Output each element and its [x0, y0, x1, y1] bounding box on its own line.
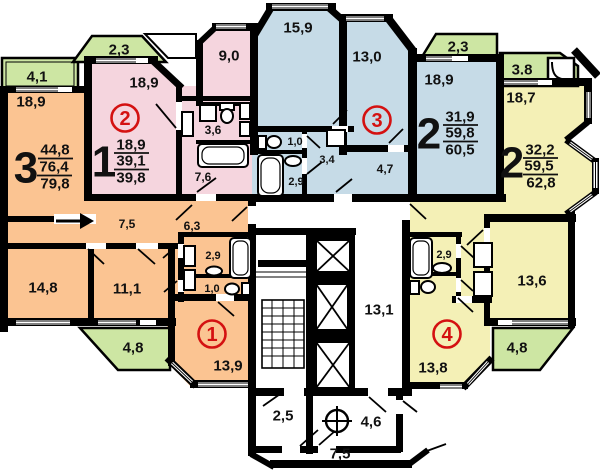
- washing-machine-icon: [200, 105, 216, 121]
- flat-number: 4: [441, 324, 453, 346]
- room-area-label: 3,4: [319, 154, 335, 166]
- balcony-area-label: 4,8: [507, 340, 528, 357]
- balcony-area-label: 2,3: [109, 42, 130, 59]
- bathtub-icon: [410, 238, 432, 278]
- elevator-icon: [316, 284, 348, 330]
- window: [272, 4, 328, 9]
- window: [426, 56, 468, 61]
- apartment-rooms-count: 3: [14, 144, 38, 193]
- room-area-label: 13,8: [418, 360, 447, 377]
- room-area-label: 13,6: [517, 273, 546, 290]
- bathtub-icon: [230, 238, 251, 278]
- window: [498, 320, 568, 325]
- apartment-full-area: 79,8: [40, 176, 69, 193]
- room-area-label: 4,7: [377, 162, 394, 176]
- garbage-chute-icon: [322, 406, 352, 436]
- apartment-total-area: 39,1: [116, 153, 145, 170]
- cabinet-icon: [327, 130, 345, 146]
- toilet-icon: [410, 281, 435, 294]
- room-area-label: 9,0: [219, 48, 240, 65]
- balcony-area-label: 4,8: [123, 340, 144, 357]
- apartment-living-area: 32,2: [525, 142, 554, 159]
- sink-icon: [206, 267, 222, 276]
- window: [98, 320, 156, 325]
- room-area-label: 2,9: [436, 249, 451, 261]
- bathtub-icon: [198, 144, 248, 167]
- room-area-label: 13,0: [352, 49, 381, 66]
- room-area-label: 1,0: [204, 283, 219, 295]
- flat-number: 3: [371, 110, 382, 132]
- apartment-rooms-count: 1: [92, 138, 116, 187]
- room-area-label: 4,6: [361, 414, 382, 431]
- room-area-label: 18,9: [424, 72, 453, 89]
- apartment-full-area: 39,8: [116, 170, 145, 187]
- toilet-icon: [225, 283, 250, 295]
- room-area-label: 18,9: [129, 75, 158, 92]
- flat-number: 2: [119, 108, 130, 130]
- cabinet-icon: [182, 112, 193, 136]
- sink-icon: [285, 156, 301, 166]
- balcony-48-right: [493, 328, 573, 370]
- elevator-icon: [316, 240, 350, 272]
- room-area-label: 14,8: [28, 280, 57, 297]
- window: [216, 24, 246, 29]
- room-area-label: 7,6: [195, 170, 212, 184]
- room-area-label: 3,6: [205, 123, 222, 137]
- floor-plan: 4,1 2,3 2,3 3.8 4,8 4,8 18,9 3 44,8 76,4…: [0, 0, 600, 473]
- apartment-full-area: 60,5: [445, 142, 474, 159]
- room-area-label: 1,0: [287, 136, 302, 148]
- window: [16, 87, 72, 92]
- room-area-label: 18,9: [16, 94, 45, 111]
- room-area-label: 18,7: [506, 90, 535, 107]
- flat-number: 1: [206, 324, 217, 346]
- sink-icon: [433, 263, 451, 273]
- toilet-icon: [258, 136, 281, 149]
- balcony-area-label: 3.8: [512, 62, 533, 79]
- room-area-label: 11,1: [113, 281, 141, 298]
- window: [346, 16, 384, 21]
- building-core: [256, 232, 355, 436]
- balcony-area-label: 2,3: [448, 39, 469, 56]
- window: [16, 320, 70, 325]
- room-area-label: 13,1: [364, 302, 393, 319]
- apartment-living-area: 31,9: [445, 109, 474, 126]
- apartment-full-area: 62,8: [526, 175, 555, 192]
- room-area-label: 2,9: [205, 250, 220, 262]
- floor-plan-svg: 4,1 2,3 2,3 3.8 4,8 4,8 18,9 3 44,8 76,4…: [0, 0, 600, 473]
- cabinet-icon: [240, 103, 250, 136]
- room-area-label: 7,5: [119, 217, 136, 231]
- room-area-label: 6,3: [184, 219, 201, 233]
- apartment-living-area: 44,8: [40, 142, 69, 159]
- apartment-total-area: 59,5: [524, 158, 553, 175]
- apartment-rooms-count: 2: [500, 139, 524, 188]
- window: [504, 80, 552, 85]
- room-area-label: 15,9: [283, 20, 312, 37]
- room-area-label: 13,9: [213, 358, 242, 375]
- staircase-icon: [256, 260, 306, 368]
- apartment-living-area: 18,9: [116, 137, 145, 154]
- toilet-icon: [220, 103, 234, 123]
- room-area-label: 2,5: [273, 408, 294, 425]
- balcony-area-label: 4,1: [27, 69, 48, 86]
- apartment-total-area: 59,8: [445, 125, 474, 142]
- window: [96, 58, 148, 63]
- room-area-label: 7,5: [330, 446, 351, 463]
- apartment-rooms-count: 2: [417, 110, 441, 159]
- apartment-total-area: 76,4: [39, 159, 69, 176]
- elevator-icon: [316, 342, 350, 388]
- bathtub-icon: [258, 155, 283, 196]
- room-area-label: 2,9: [288, 176, 303, 188]
- window: [586, 92, 591, 118]
